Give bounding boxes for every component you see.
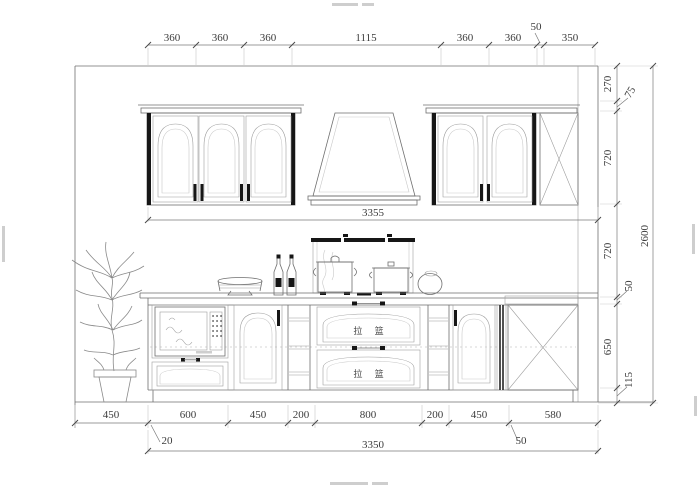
dim-text: 20 — [162, 435, 174, 447]
jar — [418, 271, 442, 295]
cabinet-side-panel — [147, 113, 151, 205]
upper-right-cabinet — [423, 105, 580, 205]
dim-text: 360 — [505, 32, 522, 44]
dim-text: 450 — [103, 409, 120, 421]
basket-drawer-bottom: 拉 篮 — [317, 346, 420, 388]
dim-text: 50 — [531, 21, 543, 33]
dim-text: 800 — [360, 409, 377, 421]
sauce-pot — [370, 262, 413, 295]
dim-text: 360 — [457, 32, 474, 44]
dim-text: 360 — [164, 32, 181, 44]
bottom-watermark — [330, 482, 368, 485]
bottom-total-dimension: 20 3350 50 — [145, 425, 601, 454]
dim-text: 720 — [602, 149, 614, 166]
dim-text: 600 — [180, 409, 197, 421]
cabinet-side-panel — [291, 113, 295, 205]
dim-text: 450 — [250, 409, 267, 421]
right-dimension-chain: 270 75 720 720 50 650 115 2600 — [598, 63, 658, 406]
right-watermark — [692, 224, 695, 254]
top-watermark — [362, 3, 374, 6]
plate-stack — [218, 278, 262, 296]
dim-text: 2600 — [639, 225, 651, 248]
dim-text: 3350 — [362, 439, 385, 451]
left-watermark — [2, 226, 5, 262]
potted-plant — [72, 242, 144, 402]
right-watermark — [694, 396, 697, 416]
door-handles — [194, 184, 251, 201]
base-door-left — [234, 305, 282, 390]
dim-text: 650 — [602, 338, 614, 355]
dim-text: 350 — [562, 32, 579, 44]
range-hood — [308, 113, 420, 205]
dim-text: 200 — [293, 409, 310, 421]
door-handles — [480, 184, 490, 201]
top-watermark — [332, 3, 358, 6]
dim-text: 50 — [623, 280, 635, 292]
filler-strip — [497, 305, 506, 390]
drawer-label: 拉 篮 — [353, 368, 388, 379]
dim-text: 360 — [212, 32, 229, 44]
dim-text: 450 — [471, 409, 488, 421]
dim-text: 200 — [427, 409, 444, 421]
stock-pot — [314, 256, 357, 295]
upper-left-cabinet — [138, 105, 304, 205]
bottom-watermark — [372, 482, 388, 485]
cabinet-side-panel — [532, 113, 536, 205]
basket-drawer-top: 拉 篮 — [317, 302, 420, 346]
dim-text: 580 — [545, 409, 562, 421]
base-crossed-panel — [508, 305, 578, 390]
dim-text: 50 — [516, 435, 528, 447]
dim-text: 3355 — [362, 207, 385, 219]
open-shelf-left — [288, 305, 310, 390]
dim-text: 270 — [602, 75, 614, 92]
cabinet-side-panel — [432, 113, 436, 205]
open-shelf-right — [428, 305, 449, 390]
microwave-drawer — [152, 358, 228, 390]
bottom-dimension-chain: 450 600 450 200 800 200 450 580 — [72, 405, 601, 428]
microwave-unit — [152, 305, 228, 358]
dim-text: 720 — [602, 242, 614, 259]
upper-crossed-panel — [540, 113, 578, 205]
dim-text: 360 — [260, 32, 277, 44]
top-dimension-chain: 360 360 360 1115 360 360 50 350 — [145, 21, 598, 66]
dim-text: 115 — [623, 371, 635, 388]
dim-text: 75 — [622, 84, 638, 100]
oil-bottles — [274, 255, 296, 296]
upper-width-dimension: 3355 — [145, 207, 601, 223]
kitchen-elevation-drawing: 拉 篮 拉 篮 — [0, 0, 700, 491]
base-cabinets: 拉 篮 拉 篮 — [148, 298, 578, 402]
cad-canvas: 拉 篮 拉 篮 — [0, 0, 700, 491]
stove-backsplash — [311, 234, 415, 293]
base-door-right — [453, 305, 495, 390]
dim-text: 1115 — [355, 32, 377, 44]
drawer-label: 拉 篮 — [353, 325, 388, 336]
